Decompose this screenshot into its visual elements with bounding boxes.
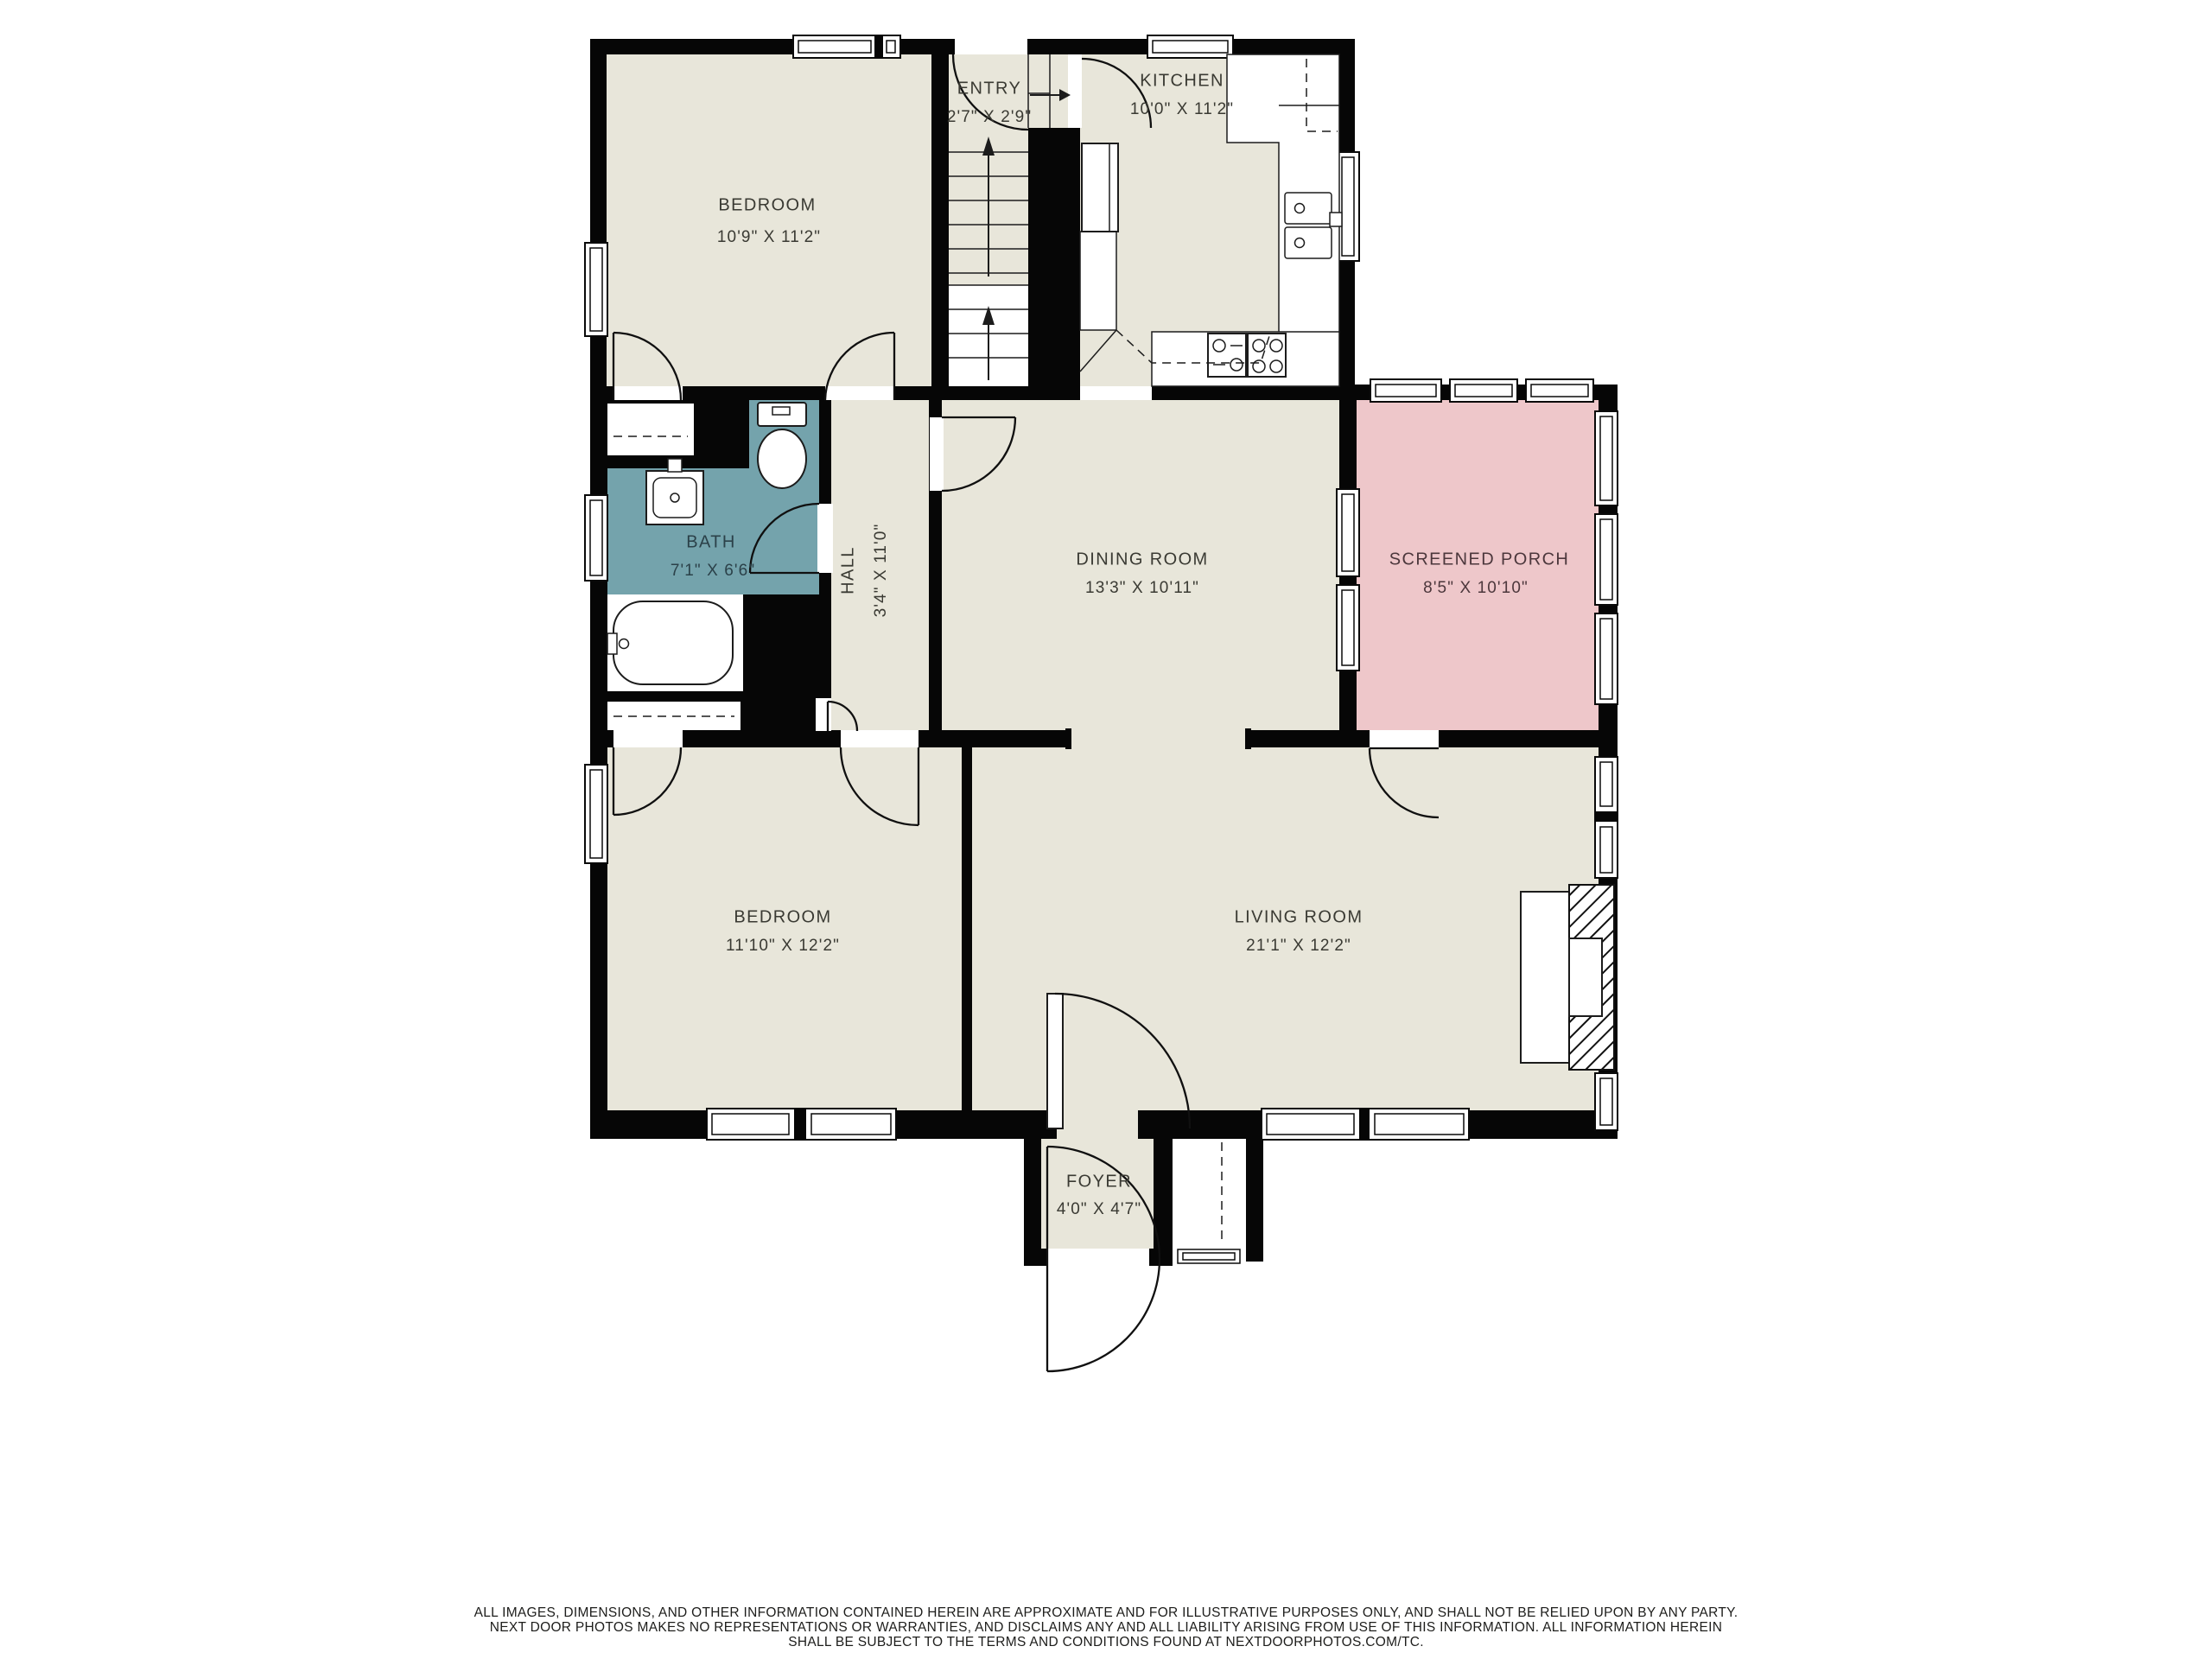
stoop-sill xyxy=(1178,1249,1240,1263)
bath-label: BATH xyxy=(686,532,735,551)
disclaimer-line-3: SHALL BE SUBJECT TO THE TERMS AND CONDIT… xyxy=(788,1635,1424,1649)
stoop-floor xyxy=(1173,1139,1246,1262)
floor-plan: BEDROOM 10'9" X 11'2" ENTRY 2'7" X 2'9" … xyxy=(0,0,2212,1659)
kitchen-left-counter xyxy=(1080,232,1116,330)
range-icon xyxy=(1208,334,1286,377)
bedroom1-floor xyxy=(607,54,931,386)
dining-dims: 13'3" X 10'11" xyxy=(1085,579,1199,597)
fireplace-icon xyxy=(1521,885,1614,1070)
entry-dims: 2'7" X 2'9" xyxy=(947,108,1032,126)
kitchen-label: KITCHEN xyxy=(1140,71,1224,90)
window-bottom-living xyxy=(1262,1109,1469,1140)
window-top-kitchen xyxy=(1147,35,1233,58)
entry-label: ENTRY xyxy=(957,79,1021,98)
bedroom1-dims: 10'9" X 11'2" xyxy=(717,228,821,246)
window-living-right-upper xyxy=(1595,757,1618,878)
bedroom1-label: BEDROOM xyxy=(718,195,816,214)
foyer-dims: 4'0" X 4'7" xyxy=(1057,1200,1141,1218)
kitchen-dims: 10'0" X 11'2" xyxy=(1130,100,1234,118)
bedroom2-floor xyxy=(607,747,962,1110)
window-left-bath xyxy=(585,495,607,581)
foyer-label: FOYER xyxy=(1066,1172,1132,1191)
hall-label: HALL xyxy=(838,546,857,594)
living-dims: 21'1" X 12'2" xyxy=(1246,937,1351,955)
window-top-bedroom1 xyxy=(793,35,900,58)
disclaimer: ALL IMAGES, DIMENSIONS, AND OTHER INFORM… xyxy=(474,1605,1738,1649)
disclaimer-line-2: NEXT DOOR PHOTOS MAKES NO REPRESENTATION… xyxy=(490,1620,1723,1635)
window-living-right-lower xyxy=(1595,1073,1618,1130)
window-left-bedroom1 xyxy=(585,243,607,336)
bath-dims: 7'1" X 6'6" xyxy=(671,562,755,580)
bedroom2-label: BEDROOM xyxy=(734,907,831,926)
floor-plan-page: BEDROOM 10'9" X 11'2" ENTRY 2'7" X 2'9" … xyxy=(0,0,2212,1659)
porch-windows-top xyxy=(1370,379,1593,402)
bathtub-icon xyxy=(607,601,733,684)
screened-porch-dims: 8'5" X 10'10" xyxy=(1423,579,1529,597)
disclaimer-line-1: ALL IMAGES, DIMENSIONS, AND OTHER INFORM… xyxy=(474,1605,1738,1620)
toilet-icon xyxy=(758,403,806,488)
window-bottom-bedroom2 xyxy=(707,1109,896,1140)
hall-dims: 3'4" X 11'0" xyxy=(872,524,890,618)
dining-label: DINING ROOM xyxy=(1076,550,1208,569)
fridge-icon xyxy=(1082,143,1118,232)
window-kitchen-right xyxy=(1337,152,1359,261)
screened-porch-label: SCREENED PORCH xyxy=(1389,550,1570,569)
window-left-bedroom2 xyxy=(585,765,607,863)
bedroom2-dims: 11'10" X 12'2" xyxy=(726,937,840,955)
porch-windows-right xyxy=(1595,411,1618,704)
foyer-floor xyxy=(1041,1139,1154,1249)
living-floor xyxy=(972,747,1599,1110)
living-label: LIVING ROOM xyxy=(1235,907,1363,926)
closet-a-floor xyxy=(607,404,694,455)
